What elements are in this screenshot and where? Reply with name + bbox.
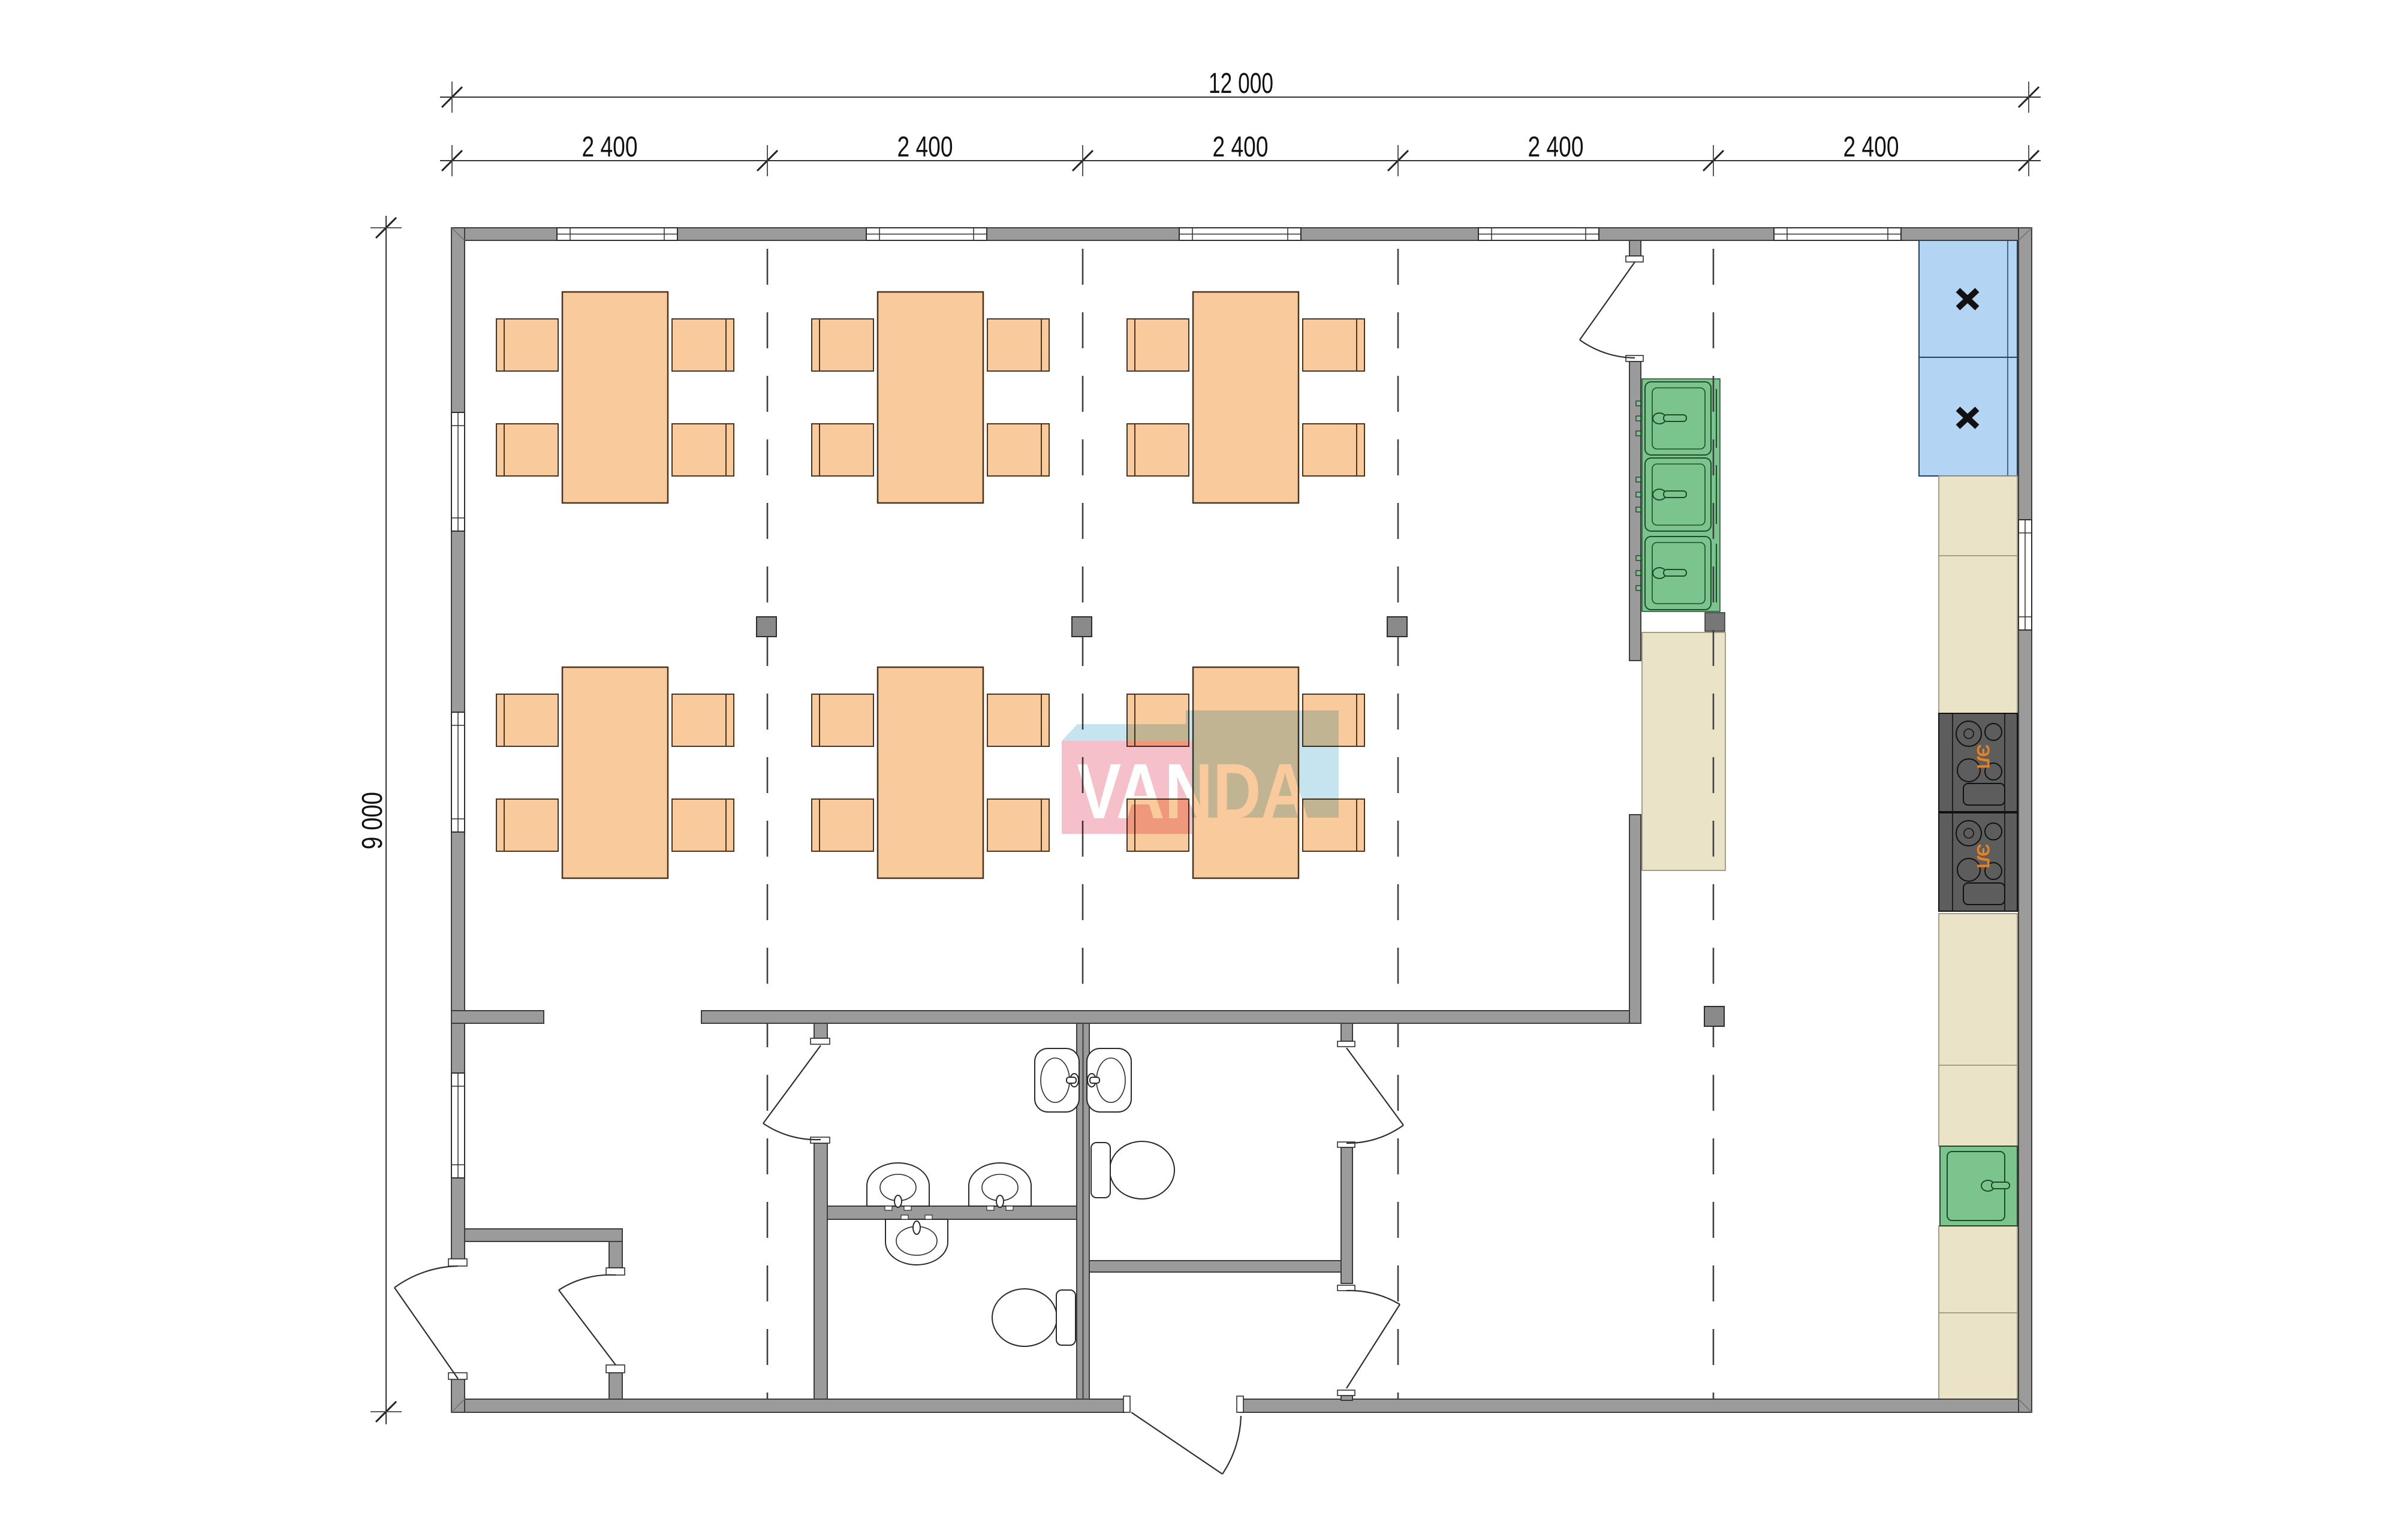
svg-text:ЭЛ: ЭЛ — [1973, 744, 1993, 769]
svg-text:2 400: 2 400 — [897, 131, 953, 163]
svg-text:9 000: 9 000 — [357, 792, 388, 849]
svg-text:ЭЛ: ЭЛ — [1973, 843, 1993, 868]
svg-text:2 400: 2 400 — [1843, 131, 1899, 163]
svg-text:2 400: 2 400 — [1213, 131, 1269, 163]
svg-text:2 400: 2 400 — [1528, 131, 1584, 163]
svg-text:2 400: 2 400 — [582, 131, 638, 163]
svg-text:12 000: 12 000 — [1209, 68, 1273, 100]
